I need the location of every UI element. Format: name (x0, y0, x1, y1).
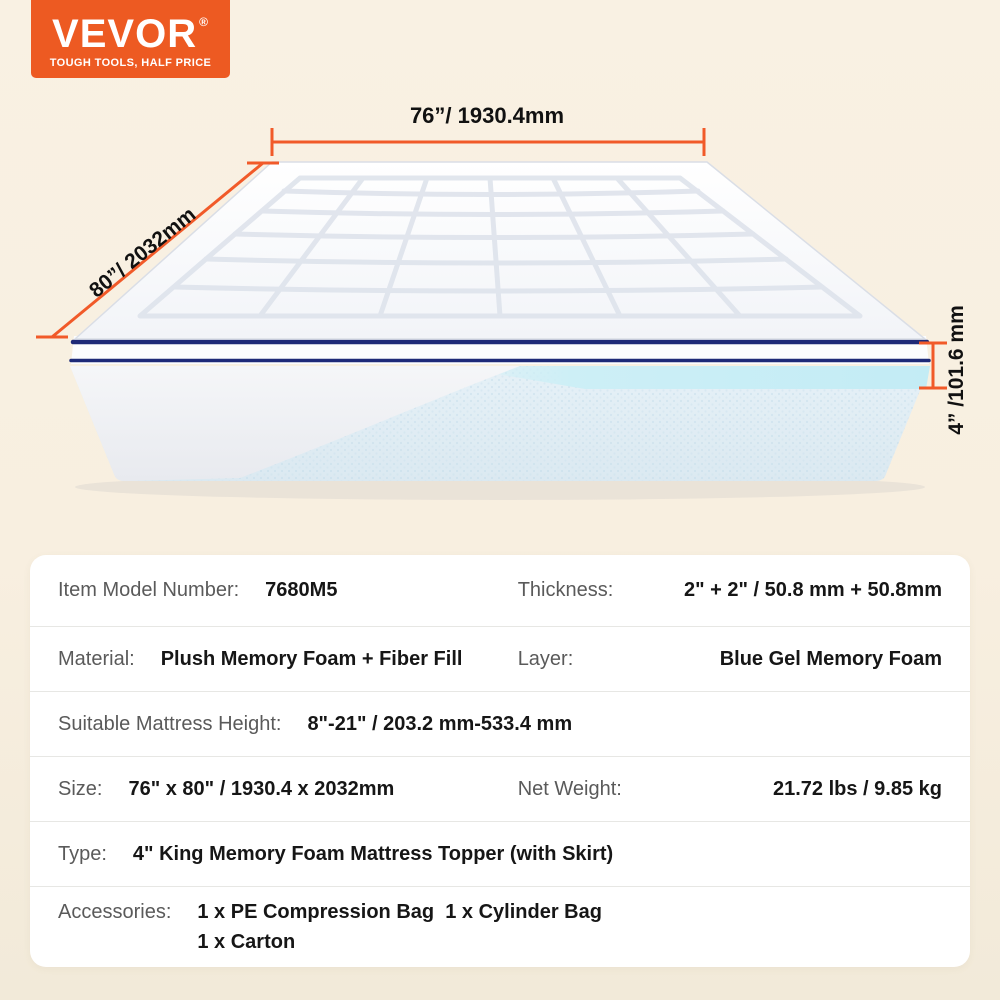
spec-pair-model: Item Model Number: 7680M5 (58, 579, 337, 602)
spec-label: Accessories: (58, 897, 171, 927)
spec-pair-accessories: Accessories: 1 x PE Compression Bag 1 x … (58, 897, 602, 957)
spec-label: Type: (58, 843, 107, 866)
spec-pair-mattress-height: Suitable Mattress Height: 8"-21" / 203.2… (58, 713, 572, 736)
spec-value: 21.72 lbs / 9.85 kg (773, 778, 942, 801)
spec-label: Material: (58, 648, 135, 671)
spec-value: Blue Gel Memory Foam (720, 648, 942, 671)
spec-label: Item Model Number: (58, 579, 239, 602)
spec-value: 2" + 2" / 50.8 mm + 50.8mm (684, 579, 942, 602)
spec-label: Thickness: (518, 579, 614, 602)
spec-table: Item Model Number: 7680M5 Thickness: 2" … (30, 555, 970, 967)
spec-pair-net-weight: Net Weight: 21.72 lbs / 9.85 kg (518, 778, 942, 801)
spec-pair-layer: Layer: Blue Gel Memory Foam (518, 648, 942, 671)
spec-row-type: Type: 4" King Memory Foam Mattress Toppe… (30, 822, 970, 887)
spec-row-mattress-height: Suitable Mattress Height: 8"-21" / 203.2… (30, 692, 970, 757)
spec-pair-thickness: Thickness: 2" + 2" / 50.8 mm + 50.8mm (518, 579, 942, 602)
spec-row-material-layer: Material: Plush Memory Foam + Fiber Fill… (30, 627, 970, 692)
dimension-height-label: 4” /101.6 mm (945, 290, 969, 450)
width-dimension-line (272, 128, 704, 156)
spec-row-model-thickness: Item Model Number: 7680M5 Thickness: 2" … (30, 555, 970, 627)
spec-row-size-weight: Size: 76" x 80" / 1930.4 x 2032mm Net We… (30, 757, 970, 822)
spec-value: 4" King Memory Foam Mattress Topper (wit… (133, 843, 613, 866)
spec-label: Layer: (518, 648, 574, 671)
spec-label: Suitable Mattress Height: (58, 713, 281, 736)
spec-value: 7680M5 (265, 579, 337, 602)
spec-row-accessories: Accessories: 1 x PE Compression Bag 1 x … (30, 887, 970, 967)
spec-pair-size: Size: 76" x 80" / 1930.4 x 2032mm (58, 778, 394, 801)
spec-value: 76" x 80" / 1930.4 x 2032mm (128, 778, 394, 801)
spec-value: Plush Memory Foam + Fiber Fill (161, 648, 463, 671)
product-infographic: VEVOR® TOUGH TOOLS, HALF PRICE (0, 0, 1000, 1000)
spec-label: Net Weight: (518, 778, 622, 801)
spec-label: Size: (58, 778, 102, 801)
dimension-width-label: 76”/ 1930.4mm (337, 103, 637, 129)
spec-value: 1 x PE Compression Bag 1 x Cylinder Bag … (197, 897, 602, 957)
spec-pair-type: Type: 4" King Memory Foam Mattress Toppe… (58, 843, 613, 866)
spec-pair-material: Material: Plush Memory Foam + Fiber Fill (58, 648, 462, 671)
spec-value: 8"-21" / 203.2 mm-533.4 mm (307, 713, 572, 736)
